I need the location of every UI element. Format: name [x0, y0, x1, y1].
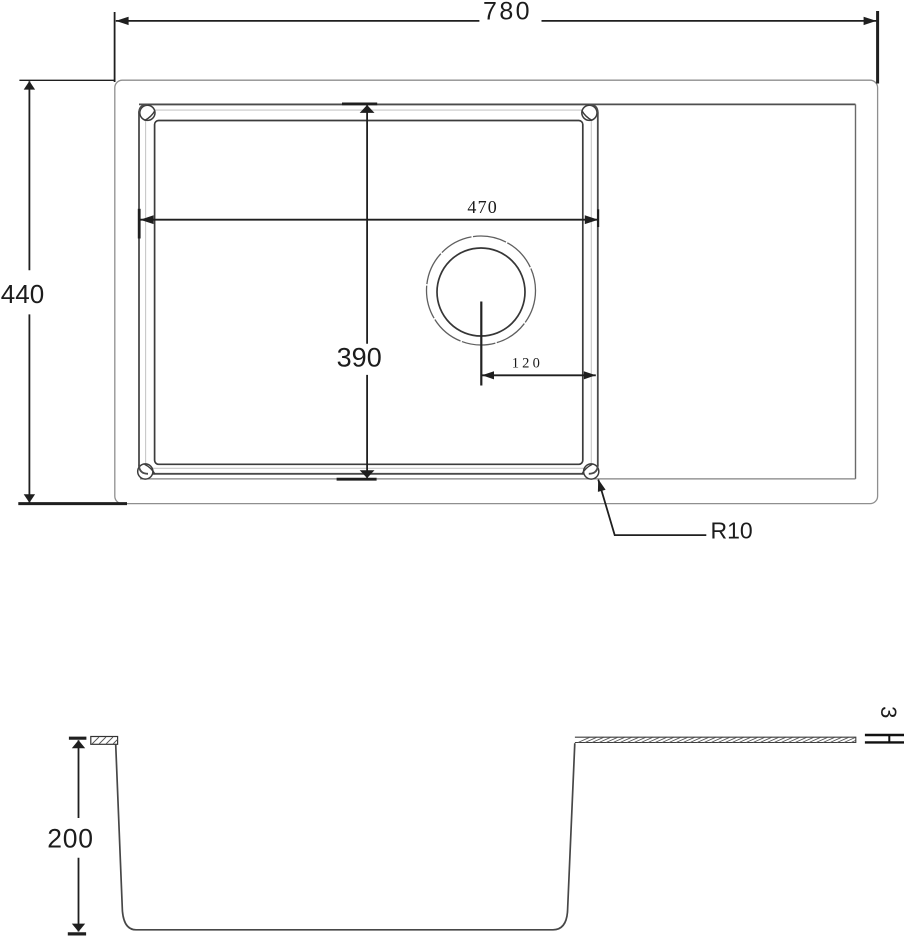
svg-text:440: 440: [1, 279, 44, 309]
svg-text:470: 470: [467, 197, 498, 217]
svg-text:R10: R10: [711, 518, 753, 544]
svg-text:3: 3: [876, 706, 901, 718]
svg-text:120: 120: [512, 355, 543, 371]
svg-text:780: 780: [483, 0, 532, 26]
svg-text:200: 200: [47, 823, 94, 853]
svg-text:390: 390: [337, 342, 382, 372]
